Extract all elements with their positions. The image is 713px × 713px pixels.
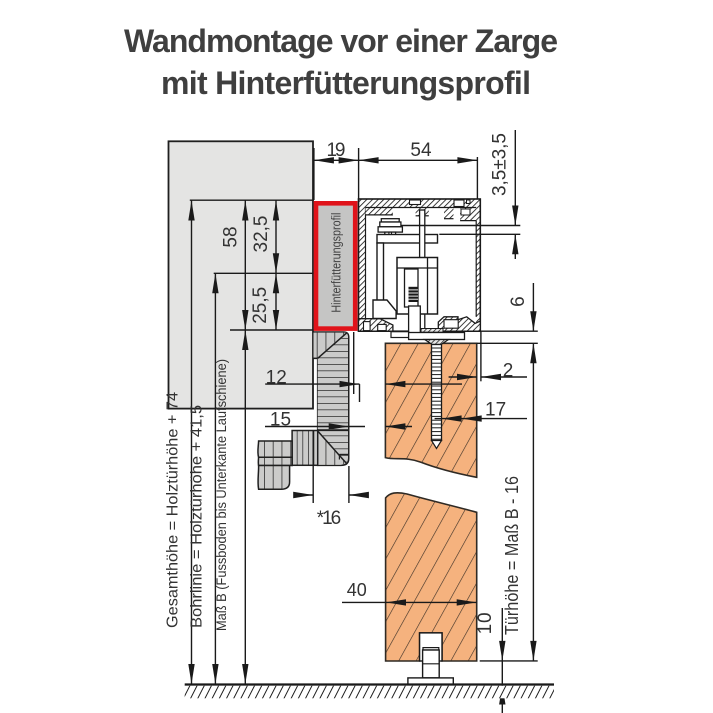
- svg-text:15: 15: [270, 410, 291, 431]
- svg-text:19: 19: [327, 140, 346, 161]
- svg-text:58: 58: [221, 226, 242, 247]
- svg-text:Wandmontage vor einer Zarge: Wandmontage vor einer Zarge: [124, 23, 558, 59]
- svg-text:Hinterfütterungsprofil: Hinterfütterungsprofil: [329, 213, 344, 313]
- svg-text:12: 12: [266, 368, 287, 389]
- svg-text:17: 17: [485, 400, 506, 421]
- svg-text:Bohrlinie = Holztürhöhe + 41,5: Bohrlinie = Holztürhöhe + 41,5: [189, 405, 206, 628]
- svg-text:Türhöhe = Maß B - 16: Türhöhe = Maß B - 16: [502, 476, 522, 635]
- svg-text:54: 54: [410, 140, 432, 161]
- svg-text:25,5: 25,5: [250, 287, 271, 324]
- svg-text:3,5±3,5: 3,5±3,5: [490, 133, 511, 196]
- svg-text:Maß B (Fussboden bis Unterkant: Maß B (Fussboden bis Unterkante Laufschi…: [214, 359, 229, 631]
- svg-text:Gesamthöhe = Holztürhöhe + 74: Gesamthöhe = Holztürhöhe + 74: [165, 392, 182, 628]
- svg-text:32,5: 32,5: [251, 216, 272, 253]
- svg-text:6: 6: [508, 296, 529, 307]
- svg-text:2: 2: [503, 360, 514, 381]
- svg-text:10: 10: [475, 612, 496, 634]
- svg-text:40: 40: [347, 580, 367, 600]
- svg-text:*16: *16: [317, 508, 342, 529]
- svg-text:mit Hinterfütterungsprofil: mit Hinterfütterungsprofil: [161, 65, 531, 101]
